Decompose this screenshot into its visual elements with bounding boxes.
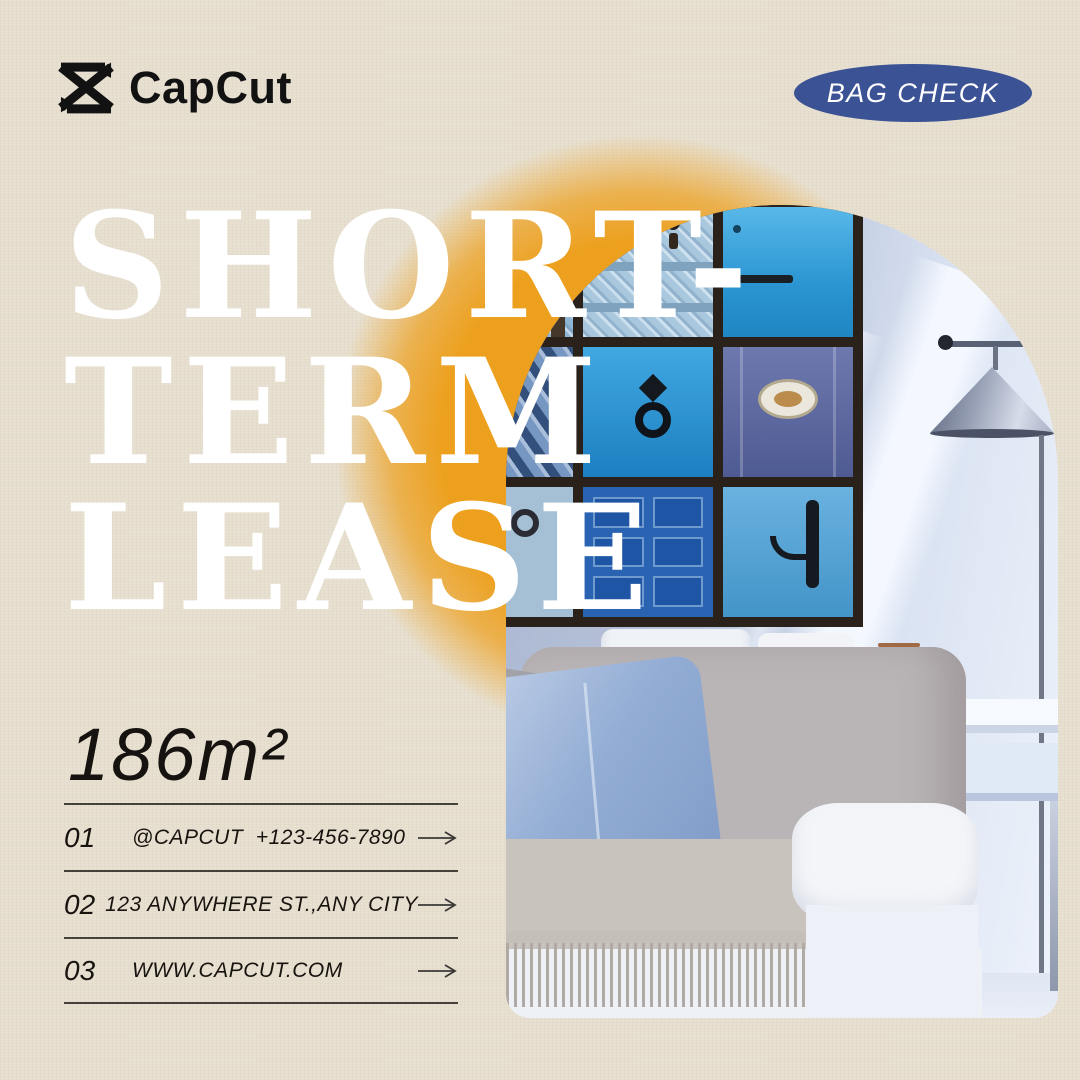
arrow-right-icon (418, 897, 458, 913)
floor-lamp-shade-rim (930, 429, 1054, 438)
row-number: 03 (64, 955, 132, 987)
contact-list: 01 @CAPCUT +123-456-7890 02 123 ANYWHERE… (64, 803, 458, 1004)
contact-row-2[interactable]: 02 123 ANYWHERE ST.,ANY CITY (64, 870, 458, 937)
arrow-right-icon (418, 963, 458, 979)
accent-table-leg (1050, 801, 1058, 991)
poster-canvas: CapCut BAG CHECK (0, 0, 1080, 1080)
sofa-armrest (806, 905, 978, 1018)
bag-check-label: BAG CHECK (827, 78, 1000, 109)
contact-website: WWW.CAPCUT.COM (132, 959, 418, 983)
floor-lamp-stem (993, 346, 998, 370)
area-size-label: 186m² (68, 712, 288, 797)
contact-handle-phone: @CAPCUT +123-456-7890 (132, 826, 418, 850)
row-number: 01 (64, 822, 132, 854)
floor-lamp-counterweight (938, 335, 953, 350)
capcut-icon (56, 60, 116, 116)
contact-address: 123 ANYWHERE ST.,ANY CITY (105, 893, 418, 917)
headline: SHORT- TERM LEASE (64, 194, 758, 632)
contact-row-3[interactable]: 03 WWW.CAPCUT.COM (64, 937, 458, 1004)
capcut-logo: CapCut (56, 60, 292, 116)
row-number: 02 (64, 889, 105, 921)
headline-line-1: SHORT- (64, 194, 758, 340)
floor-lamp-arm (946, 341, 1058, 347)
contact-row-1[interactable]: 01 @CAPCUT +123-456-7890 (64, 803, 458, 870)
arrow-right-icon (418, 830, 458, 846)
capcut-logo-text: CapCut (129, 62, 292, 114)
headline-line-3: LEASE (64, 486, 758, 632)
headline-line-2: TERM (64, 340, 758, 486)
bag-check-badge: BAG CHECK (794, 64, 1032, 122)
